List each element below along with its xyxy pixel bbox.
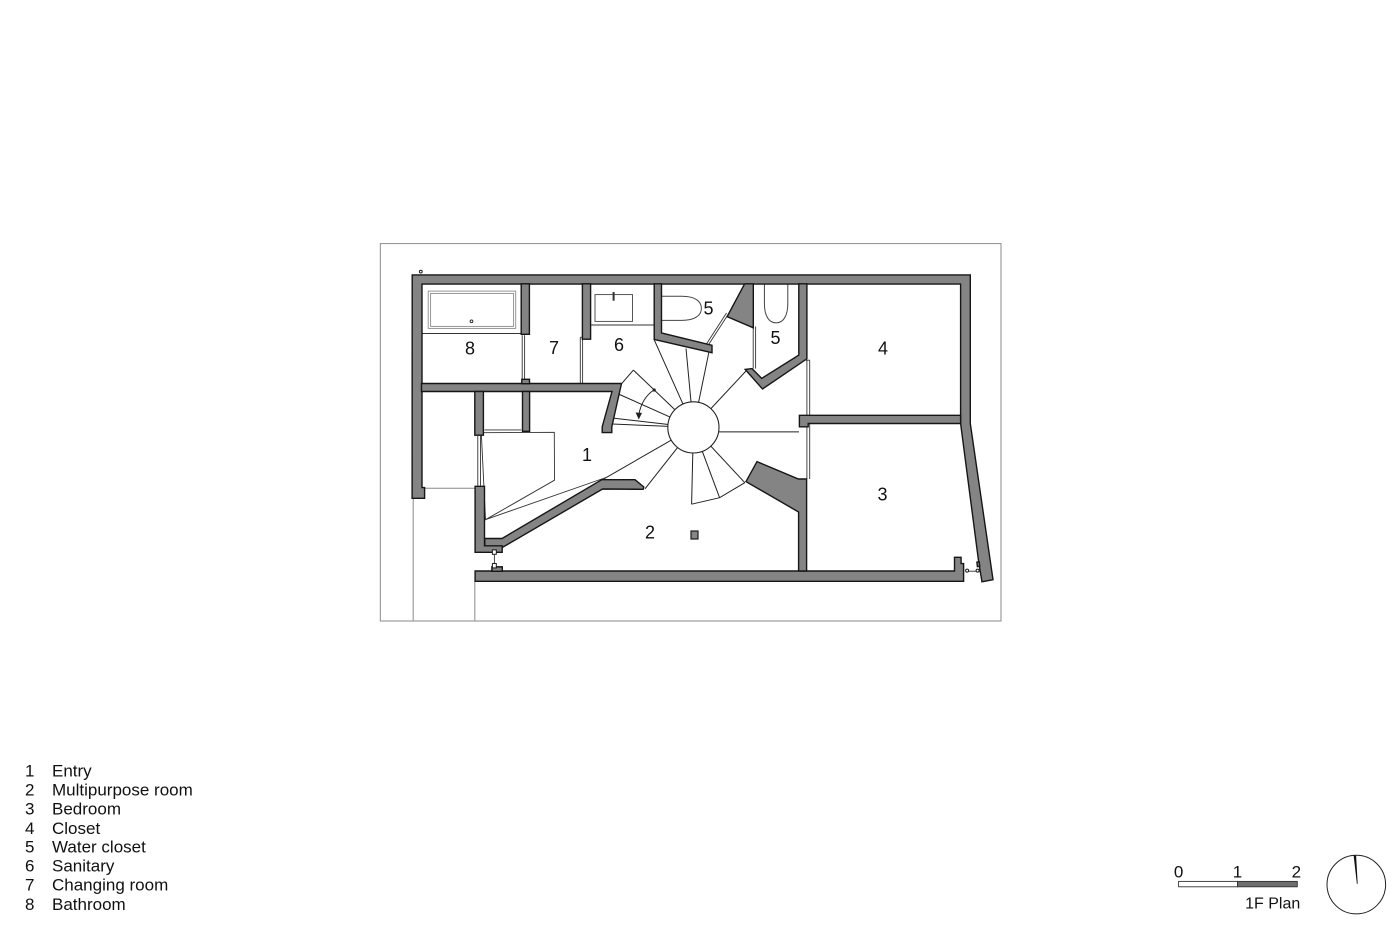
svg-text:1F Plan: 1F Plan bbox=[1245, 896, 1300, 913]
svg-text:8: 8 bbox=[25, 895, 34, 914]
svg-text:6: 6 bbox=[614, 335, 624, 355]
svg-text:Bathroom: Bathroom bbox=[52, 895, 126, 914]
svg-text:4: 4 bbox=[25, 819, 34, 838]
svg-text:1: 1 bbox=[25, 761, 34, 780]
svg-text:6: 6 bbox=[25, 856, 34, 875]
svg-text:7: 7 bbox=[549, 338, 559, 358]
svg-text:Sanitary: Sanitary bbox=[52, 856, 115, 875]
svg-text:Entry: Entry bbox=[52, 761, 92, 780]
svg-text:5: 5 bbox=[25, 838, 34, 857]
svg-text:7: 7 bbox=[25, 876, 34, 895]
svg-text:4: 4 bbox=[878, 339, 888, 359]
svg-text:5: 5 bbox=[703, 299, 713, 319]
svg-text:2: 2 bbox=[645, 523, 655, 543]
svg-text:0: 0 bbox=[1174, 862, 1183, 881]
svg-text:1: 1 bbox=[1233, 862, 1242, 881]
svg-text:2: 2 bbox=[1292, 862, 1301, 881]
svg-text:Water closet: Water closet bbox=[52, 838, 146, 857]
svg-text:3: 3 bbox=[25, 800, 34, 819]
svg-text:Closet: Closet bbox=[52, 819, 100, 838]
svg-text:2: 2 bbox=[25, 781, 34, 800]
svg-text:5: 5 bbox=[770, 328, 780, 348]
svg-text:Multipurpose room: Multipurpose room bbox=[52, 781, 193, 800]
svg-text:3: 3 bbox=[877, 485, 887, 505]
svg-text:8: 8 bbox=[465, 339, 475, 359]
svg-text:Bedroom: Bedroom bbox=[52, 800, 121, 819]
svg-text:1: 1 bbox=[582, 445, 592, 465]
svg-text:Changing room: Changing room bbox=[52, 876, 168, 895]
